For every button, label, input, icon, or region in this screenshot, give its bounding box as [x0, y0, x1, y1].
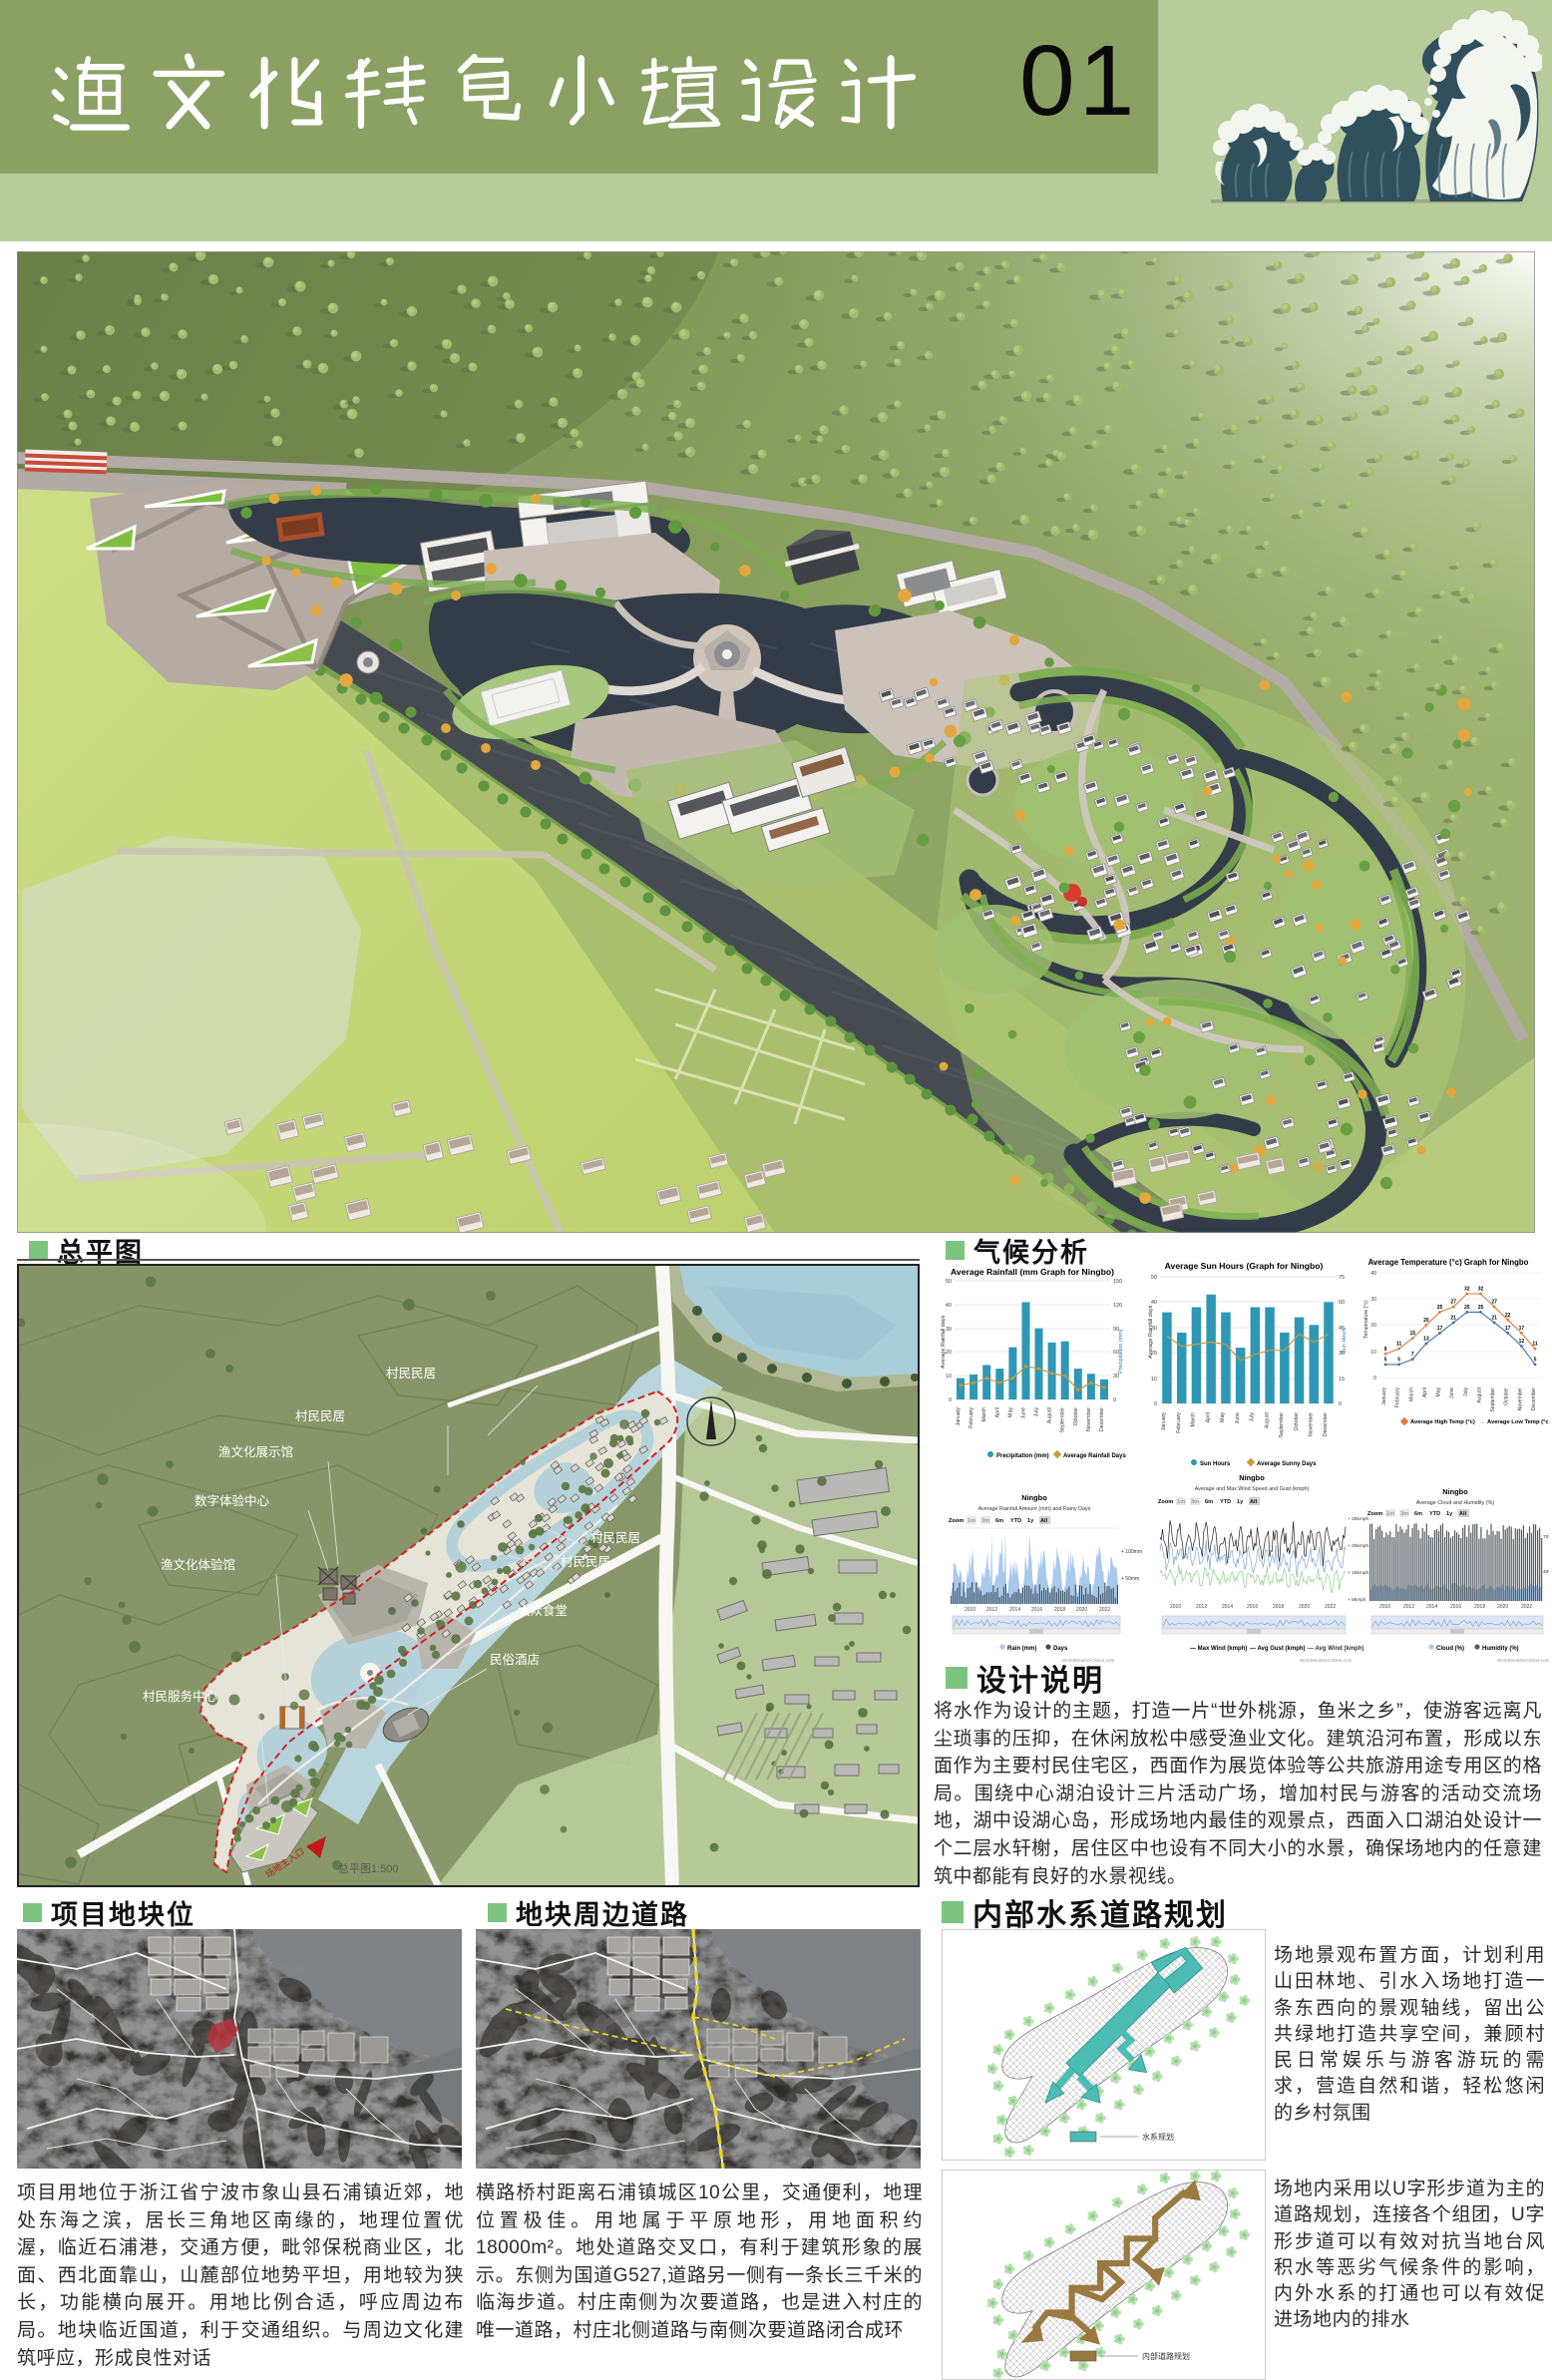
svg-text:Ningbo: Ningbo: [1442, 1487, 1468, 1496]
svg-text:January: January: [1161, 1412, 1167, 1431]
svg-text:October: October: [1294, 1412, 1300, 1431]
svg-text:Ningbo: Ningbo: [1021, 1493, 1047, 1502]
svg-text:2018: 2018: [1054, 1607, 1065, 1613]
svg-text:August: August: [1477, 1387, 1483, 1402]
svg-text:21: 21: [1450, 1315, 1456, 1321]
svg-text:27: 27: [1450, 1300, 1456, 1306]
svg-text:Average Rainfall days: Average Rainfall days: [1148, 1305, 1154, 1359]
svg-text:40: 40: [1370, 1271, 1376, 1277]
svg-text:75: 75: [1339, 1275, 1345, 1281]
svg-text:March: March: [1408, 1388, 1414, 1401]
svg-text:November: November: [1517, 1388, 1523, 1410]
svg-text:Zoom: Zoom: [1367, 1511, 1382, 1517]
svg-text:2012: 2012: [1196, 1604, 1207, 1610]
svg-text:3m: 3m: [981, 1518, 989, 1524]
svg-text:— Avg Gust (kmph): — Avg Gust (kmph): [1250, 1646, 1306, 1652]
svg-text:150: 150: [1113, 1279, 1122, 1285]
svg-text:7: 7: [1411, 1352, 1414, 1358]
svg-text:May: May: [1007, 1407, 1013, 1417]
svg-text:September: September: [1490, 1388, 1496, 1412]
svg-text:1y: 1y: [1237, 1499, 1244, 1505]
svg-text:July: July: [1250, 1412, 1256, 1422]
svg-text:40: 40: [946, 1303, 952, 1309]
svg-text:All: All: [1040, 1518, 1048, 1524]
svg-text:— Avg Wind (kmph): — Avg Wind (kmph): [1308, 1646, 1364, 1652]
svg-text:All: All: [1250, 1499, 1258, 1505]
svg-text:Average Rainfall Days: Average Rainfall Days: [1063, 1453, 1126, 1459]
svg-text:+ 5kmph: + 5kmph: [1348, 1597, 1366, 1603]
svg-text:2012: 2012: [1403, 1604, 1414, 1610]
svg-text:2016: 2016: [1247, 1604, 1258, 1610]
svg-text:村民服务中心: 村民服务中心: [143, 1689, 218, 1704]
svg-text:October: October: [1073, 1407, 1079, 1426]
svg-text:All: All: [1459, 1511, 1467, 1517]
svg-text:Ningbo: Ningbo: [1239, 1473, 1265, 1482]
svg-text:2020: 2020: [1497, 1604, 1508, 1610]
svg-text:15: 15: [1339, 1377, 1345, 1383]
svg-text:3m: 3m: [1400, 1511, 1408, 1517]
svg-text:June: June: [1235, 1412, 1241, 1423]
svg-text:2014: 2014: [1426, 1604, 1437, 1610]
svg-text:大众食堂: 大众食堂: [518, 1603, 568, 1618]
svg-text:Temperature (°c): Temperature (°c): [1363, 1300, 1369, 1339]
svg-text:50: 50: [1151, 1275, 1157, 1281]
svg-text:渔文化体验馆: 渔文化体验馆: [161, 1557, 235, 1572]
svg-text:25: 25: [1464, 1305, 1470, 1311]
svg-text:Average Sun Hours (Graph for N: Average Sun Hours (Graph for Ningbo): [1165, 1261, 1324, 1271]
svg-text:17: 17: [1505, 1326, 1511, 1332]
svg-text:数字体验中心: 数字体验中心: [194, 1493, 270, 1508]
svg-text:村民民居: 村民民居: [386, 1367, 436, 1381]
svg-text:June: June: [1449, 1388, 1455, 1398]
svg-text:Days: Days: [1053, 1646, 1068, 1652]
svg-text:Average High Temp (°c): Average High Temp (°c): [1410, 1419, 1475, 1425]
svg-text:6m: 6m: [1205, 1499, 1213, 1505]
svg-text:Average Cloud and Humidity (%): Average Cloud and Humidity (%): [1416, 1500, 1495, 1506]
svg-text:Sun Hours: Sun Hours: [1200, 1461, 1231, 1467]
svg-text:+ 100mm: + 100mm: [1121, 1549, 1142, 1555]
svg-text:25: 25: [1437, 1305, 1443, 1311]
svg-text:— Max Wind (kmph): — Max Wind (kmph): [1190, 1646, 1247, 1652]
svg-text:February: February: [1176, 1412, 1182, 1433]
svg-text:32: 32: [1478, 1287, 1484, 1293]
svg-text:Average Rainfall days: Average Rainfall days: [941, 1315, 947, 1369]
svg-text:32: 32: [1464, 1287, 1470, 1293]
svg-text:March: March: [1191, 1412, 1197, 1427]
svg-text:Average Low Temp (°c): Average Low Temp (°c): [1487, 1419, 1549, 1425]
svg-text:May: May: [1220, 1412, 1226, 1422]
svg-text:水系规划: 水系规划: [1142, 2132, 1174, 2142]
svg-text:22: 22: [1505, 1313, 1511, 1319]
svg-text:July: July: [1034, 1407, 1040, 1417]
svg-text:2018: 2018: [1474, 1604, 1485, 1610]
svg-text:Rain (mm): Rain (mm): [1007, 1646, 1036, 1652]
svg-text:2010: 2010: [1379, 1604, 1390, 1610]
svg-text:July: July: [1463, 1388, 1469, 1396]
svg-text:渔文化展示馆: 渔文化展示馆: [218, 1444, 293, 1459]
svg-text:21: 21: [1491, 1315, 1497, 1321]
svg-text:17: 17: [1519, 1326, 1525, 1332]
svg-text:January: January: [1381, 1388, 1387, 1405]
svg-text:Average Rainfall (mm Graph for: Average Rainfall (mm Graph for Ningbo): [951, 1267, 1114, 1277]
svg-text:Average Sunny Days: Average Sunny Days: [1257, 1461, 1317, 1467]
svg-text:1m: 1m: [1386, 1511, 1394, 1517]
svg-text:YTD: YTD: [1010, 1518, 1021, 1524]
svg-text:0: 0: [1339, 1401, 1342, 1407]
svg-text:Sun Hours: Sun Hours: [1342, 1328, 1348, 1354]
svg-text:50: 50: [946, 1279, 952, 1285]
svg-text:March: March: [981, 1407, 987, 1422]
svg-text:1y: 1y: [1446, 1511, 1453, 1517]
svg-text:September: September: [1279, 1412, 1285, 1438]
svg-text:+ 50mm: + 50mm: [1121, 1576, 1139, 1582]
svg-text:Average and Max Wind Speed and: Average and Max Wind Speed and Gust (kmp…: [1195, 1486, 1310, 1492]
svg-text:January: January: [956, 1407, 962, 1426]
svg-text:12: 12: [1519, 1339, 1525, 1345]
svg-text:December: December: [1531, 1388, 1537, 1410]
svg-text:May: May: [1436, 1388, 1442, 1397]
svg-text:November: November: [1309, 1412, 1315, 1436]
svg-text:Cloud (%): Cloud (%): [1436, 1646, 1464, 1652]
svg-text:0: 0: [1373, 1376, 1376, 1382]
svg-text:Average Temperature (°c) Graph: Average Temperature (°c) Graph for Ningb…: [1368, 1259, 1529, 1267]
svg-text:Humidity (%): Humidity (%): [1482, 1646, 1519, 1652]
svg-text:村民民居: 村民民居: [295, 1409, 345, 1423]
svg-text:+ 15kmph: + 15kmph: [1348, 1570, 1369, 1576]
svg-text:5: 5: [1534, 1357, 1537, 1363]
svg-text:70%: 70%: [1543, 1534, 1549, 1540]
svg-text:2012: 2012: [986, 1607, 997, 1613]
svg-text:October: October: [1504, 1388, 1510, 1405]
svg-text:YTD: YTD: [1429, 1511, 1440, 1517]
svg-text:Average Rainfall Amount (mm) a: Average Rainfall Amount (mm) and Rainy D…: [978, 1506, 1091, 1512]
svg-text:December: December: [1099, 1407, 1105, 1431]
svg-text:2014: 2014: [1009, 1607, 1020, 1613]
svg-text:April: April: [994, 1407, 1000, 1417]
svg-text:内部道路规划: 内部道路规划: [1142, 2351, 1190, 2361]
svg-text:WorldWeatherOnline.com: WorldWeatherOnline.com: [1497, 1658, 1549, 1663]
svg-text:0: 0: [949, 1397, 952, 1403]
svg-text:August: August: [1047, 1406, 1053, 1423]
svg-text:+ 25kmph: + 25kmph: [1348, 1516, 1369, 1522]
svg-text:December: December: [1323, 1412, 1329, 1436]
svg-text:6m: 6m: [995, 1518, 1003, 1524]
svg-text:February: February: [1395, 1388, 1401, 1408]
svg-text:10: 10: [1370, 1350, 1376, 1356]
svg-text:June: June: [1021, 1407, 1027, 1418]
svg-text:3m: 3m: [1191, 1499, 1199, 1505]
svg-text:1m: 1m: [1177, 1499, 1185, 1505]
svg-text:15: 15: [1410, 1331, 1416, 1337]
svg-text:20: 20: [1370, 1323, 1376, 1329]
svg-text:120: 120: [1113, 1303, 1122, 1309]
svg-text:村民民居: 村民民居: [561, 1555, 610, 1569]
svg-text:2022: 2022: [1325, 1604, 1336, 1610]
svg-text:25: 25: [1478, 1305, 1484, 1311]
svg-text:20: 20: [1423, 1318, 1429, 1324]
svg-text:11: 11: [1532, 1342, 1538, 1348]
svg-text:February: February: [969, 1407, 974, 1428]
svg-text:YTD: YTD: [1220, 1499, 1231, 1505]
svg-text:September: September: [1060, 1407, 1066, 1433]
svg-text:April: April: [1205, 1412, 1211, 1422]
svg-text:August: August: [1264, 1411, 1270, 1428]
svg-text:Precipitation (mm): Precipitation (mm): [1118, 1329, 1124, 1374]
svg-text:Precipitation (mm): Precipitation (mm): [996, 1453, 1049, 1459]
svg-text:5: 5: [1384, 1357, 1387, 1363]
svg-text:2022: 2022: [1521, 1604, 1532, 1610]
svg-text:总平图1:500: 总平图1:500: [338, 1861, 399, 1875]
svg-text:→: →: [1479, 1419, 1485, 1425]
svg-text:1y: 1y: [1027, 1518, 1034, 1524]
svg-text:6m: 6m: [1414, 1511, 1422, 1517]
svg-text:10: 10: [946, 1374, 952, 1380]
svg-text:民俗酒店: 民俗酒店: [490, 1653, 540, 1667]
svg-text:1m: 1m: [968, 1518, 975, 1524]
svg-text:17: 17: [1437, 1326, 1443, 1332]
svg-text:April: April: [1422, 1388, 1428, 1397]
svg-text:10: 10: [1151, 1377, 1157, 1383]
svg-text:27: 27: [1491, 1300, 1497, 1306]
svg-text:+ 20kmph: + 20kmph: [1348, 1543, 1369, 1549]
svg-text:WorldWeatherOnline.com: WorldWeatherOnline.com: [1300, 1658, 1353, 1663]
svg-text:Zoom: Zoom: [1158, 1499, 1173, 1505]
svg-text:40%: 40%: [1543, 1569, 1549, 1575]
svg-text:2020: 2020: [1299, 1604, 1310, 1610]
svg-text:2020: 2020: [1076, 1607, 1087, 1613]
svg-text:2010: 2010: [965, 1607, 975, 1613]
svg-text:2018: 2018: [1273, 1604, 1284, 1610]
svg-text:2016: 2016: [1450, 1604, 1461, 1610]
svg-text:5: 5: [1397, 1357, 1400, 1363]
svg-text:9: 9: [1384, 1347, 1387, 1353]
svg-text:2022: 2022: [1099, 1607, 1110, 1613]
svg-text:0: 0: [1154, 1401, 1157, 1407]
svg-text:11: 11: [1396, 1342, 1402, 1348]
svg-text:村民民居: 村民民居: [590, 1531, 640, 1545]
svg-text:30: 30: [1370, 1297, 1376, 1303]
svg-text:2010: 2010: [1170, 1604, 1181, 1610]
svg-text:13: 13: [1423, 1336, 1429, 1342]
svg-text:0: 0: [1113, 1397, 1116, 1403]
svg-text:40: 40: [1151, 1300, 1157, 1306]
svg-text:November: November: [1086, 1407, 1092, 1431]
svg-text:2014: 2014: [1222, 1604, 1233, 1610]
svg-text:2016: 2016: [1031, 1607, 1042, 1613]
svg-text:60: 60: [1339, 1300, 1345, 1306]
svg-text:Zoom: Zoom: [949, 1518, 964, 1524]
